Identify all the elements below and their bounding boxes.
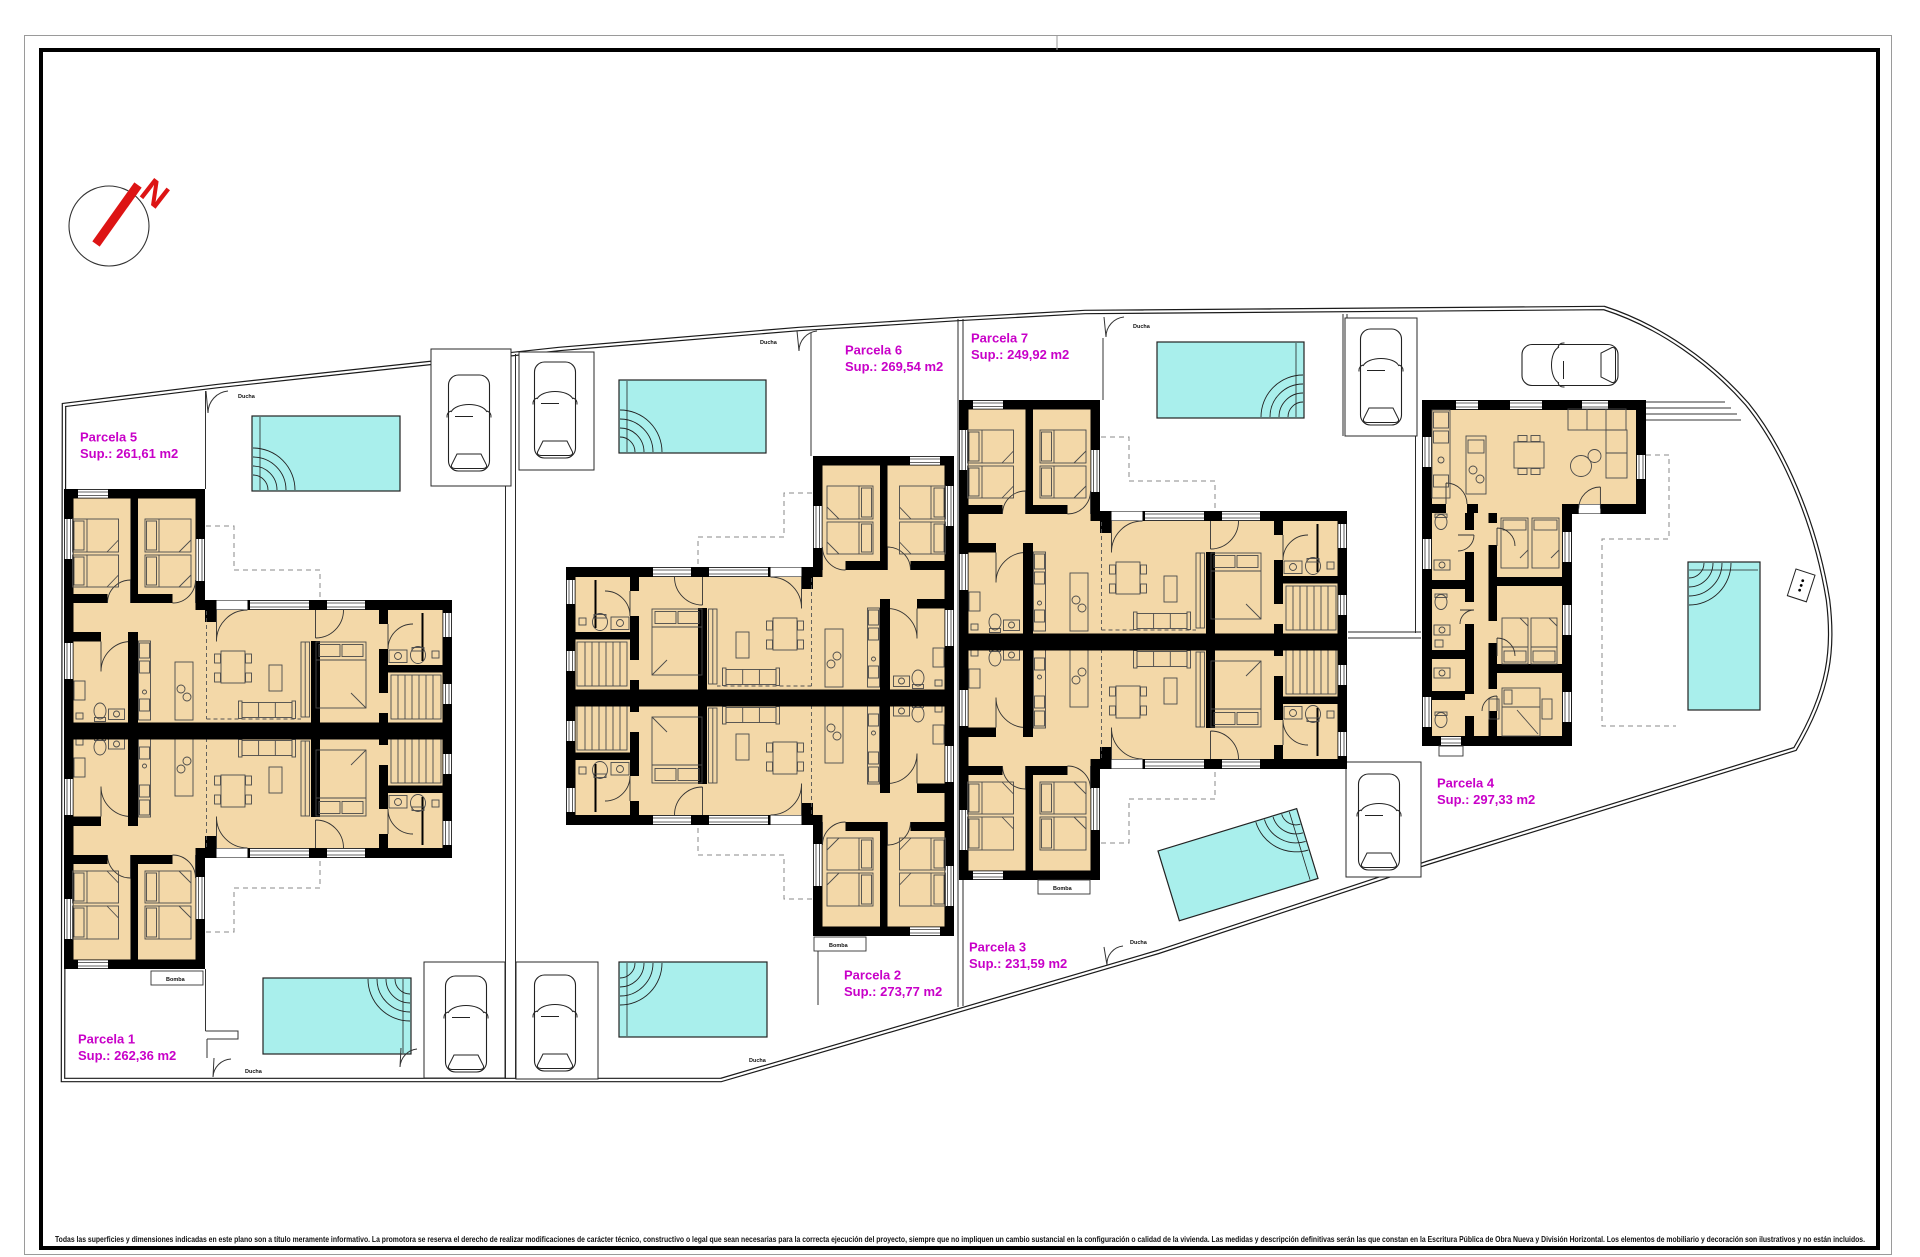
svg-text:Ducha: Ducha [1130,940,1148,946]
svg-text:Sup.: 269,54 m2: Sup.: 269,54 m2 [845,359,943,374]
svg-text:Sup.: 249,92 m2: Sup.: 249,92 m2 [971,347,1069,362]
svg-text:Ducha: Ducha [245,1069,263,1075]
svg-text:Ducha: Ducha [749,1058,767,1064]
svg-text:Sup.: 273,77 m2: Sup.: 273,77 m2 [844,984,942,999]
svg-text:Sup.: 297,33 m2: Sup.: 297,33 m2 [1437,792,1535,807]
svg-text:Parcela 7: Parcela 7 [971,331,1028,346]
svg-text:Bomba: Bomba [1053,886,1073,892]
svg-text:Parcela 2: Parcela 2 [844,968,901,983]
svg-text:Todas las superficies y dimens: Todas las superficies y dimensiones indi… [55,1235,1865,1244]
svg-text:Parcela 1: Parcela 1 [78,1032,135,1047]
svg-text:Parcela 4: Parcela 4 [1437,776,1495,791]
svg-text:Bomba: Bomba [829,943,849,949]
svg-text:Sup.: 262,36 m2: Sup.: 262,36 m2 [78,1048,176,1063]
svg-text:Ducha: Ducha [760,340,778,346]
svg-text:Sup.: 261,61 m2: Sup.: 261,61 m2 [80,446,178,461]
svg-text:Parcela 6: Parcela 6 [845,343,902,358]
svg-text:Parcela 5: Parcela 5 [80,430,137,445]
svg-text:Ducha: Ducha [238,394,256,400]
svg-text:Ducha: Ducha [1133,324,1151,330]
svg-text:Bomba: Bomba [166,977,186,983]
svg-text:Sup.: 231,59 m2: Sup.: 231,59 m2 [969,956,1067,971]
svg-text:Parcela 3: Parcela 3 [969,940,1026,955]
